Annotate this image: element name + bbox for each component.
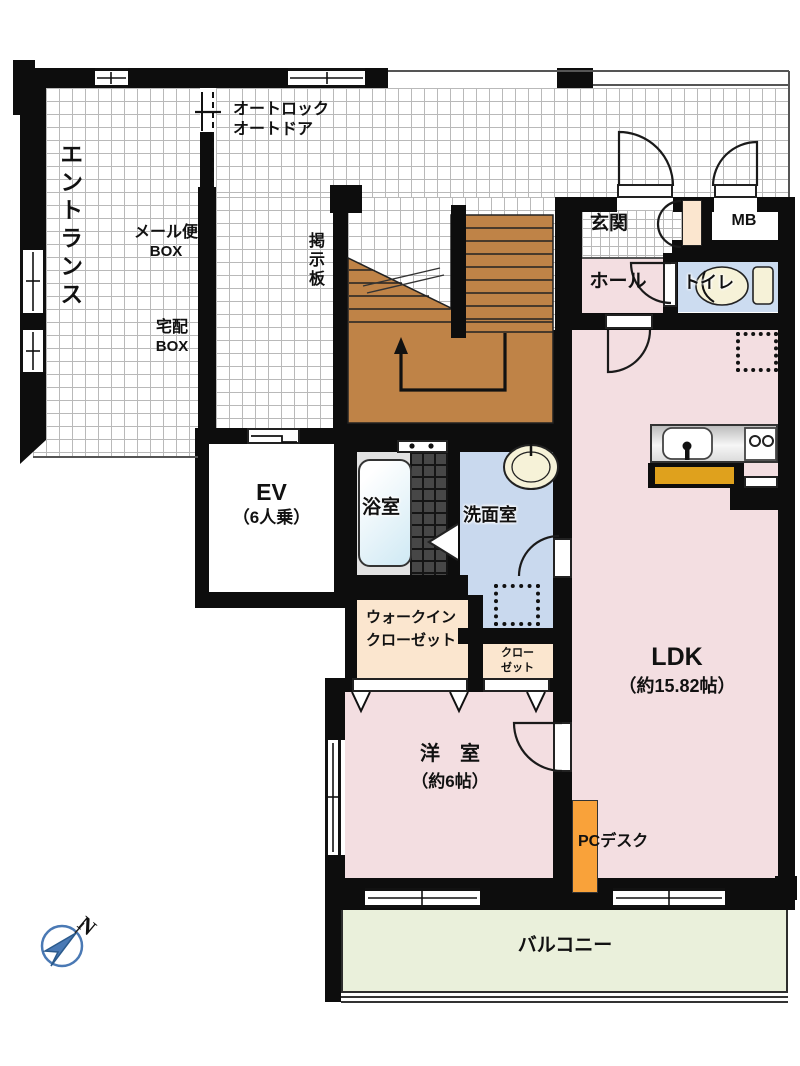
- shoe-cabinet-door-arc: [658, 224, 681, 247]
- bedroom-line1: 洋 室: [355, 742, 545, 767]
- delivery-line1: 宅配: [140, 318, 204, 338]
- mb-door-arc: [713, 142, 757, 186]
- wic-line2: クローゼット: [352, 630, 470, 653]
- auto-door-symbol: [195, 92, 221, 186]
- closet-label: クロー ゼット: [486, 646, 549, 676]
- compass-icon: N: [42, 911, 101, 966]
- ldk-door-arc: [608, 330, 650, 372]
- mb-label: MB: [710, 211, 778, 231]
- ldk-line2: （約15.82帖）: [588, 675, 766, 698]
- washroom-label: 洗面室: [463, 504, 517, 527]
- elevator-door-symbol: [251, 436, 297, 442]
- floor-plan: N エントランス オートロック オートドア メール便 BOX 宅配 BOX 掲示…: [0, 0, 800, 1066]
- wall-foot: [20, 440, 46, 464]
- entrance-label: エントランス: [55, 142, 84, 310]
- stairs-arrow-head: [394, 337, 408, 354]
- autolock-line2: オートドア: [233, 120, 329, 140]
- shoe-cabinet-door-arc: [658, 201, 681, 224]
- closet-door-v-marks: [352, 692, 545, 711]
- balcony-label: バルコニー: [490, 934, 640, 958]
- elevator-label: EV （6人乗）: [209, 478, 334, 528]
- entrance-door-arc: [619, 132, 673, 186]
- corridor-boundary-lines: [33, 71, 789, 457]
- ldk-line1: LDK: [588, 642, 766, 673]
- pc-desk-label: PCデスク: [578, 832, 648, 852]
- autolock-line1: オートロック: [233, 100, 329, 120]
- closet-line2: ゼット: [486, 661, 549, 676]
- genkan-label: 玄関: [590, 212, 628, 236]
- autolock-label: オートロック オートドア: [233, 100, 329, 140]
- closet-line1: クロー: [486, 646, 549, 661]
- delivery-box-label: 宅配 BOX: [140, 318, 204, 357]
- mail-line2: BOX: [126, 243, 206, 262]
- kitchen-sink-icon: [663, 428, 712, 460]
- bedroom-label: 洋 室 （約6帖）: [355, 742, 545, 792]
- washroom-door-arc: [519, 536, 559, 576]
- ev-line1: EV: [209, 478, 334, 507]
- balcony-edge-lines: [341, 997, 788, 1002]
- bath-knob-icon: [428, 443, 433, 448]
- bath-knob-icon: [409, 443, 414, 448]
- board-label: 掲示板: [304, 232, 324, 289]
- delivery-line2: BOX: [140, 338, 204, 357]
- hall-label: ホール: [572, 270, 664, 294]
- stairs-up-arrow: [401, 333, 505, 390]
- wic-line1: ウォークイン: [352, 607, 470, 630]
- washbasin-icon: [504, 444, 558, 489]
- bedroom-line2: （約6帖）: [355, 771, 545, 792]
- bath-folding-door: [429, 524, 458, 560]
- mail-box-label: メール便 BOX: [126, 223, 206, 262]
- ldk-label: LDK （約15.82帖）: [588, 642, 766, 698]
- ev-line2: （6人乗）: [209, 507, 334, 528]
- mail-line1: メール便: [126, 223, 206, 243]
- plan-graphics: N: [0, 0, 800, 1066]
- toilet-label: トイレ: [683, 272, 734, 293]
- stove-icon: [745, 428, 776, 460]
- wic-label: ウォークイン クローゼット: [352, 607, 470, 652]
- bath-label: 浴室: [362, 496, 400, 520]
